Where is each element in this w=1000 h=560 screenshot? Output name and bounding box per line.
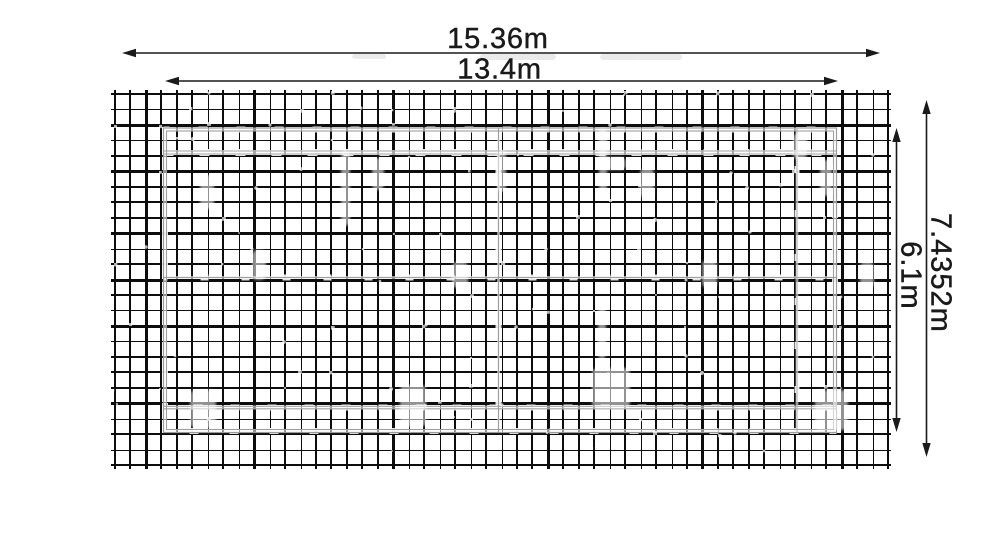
svg-text:6.1m: 6.1m [894, 241, 926, 309]
svg-text:15.36m: 15.36m [447, 23, 549, 55]
svg-text:7.4352m: 7.4352m [925, 213, 957, 333]
svg-text:13.4m: 13.4m [457, 54, 542, 86]
